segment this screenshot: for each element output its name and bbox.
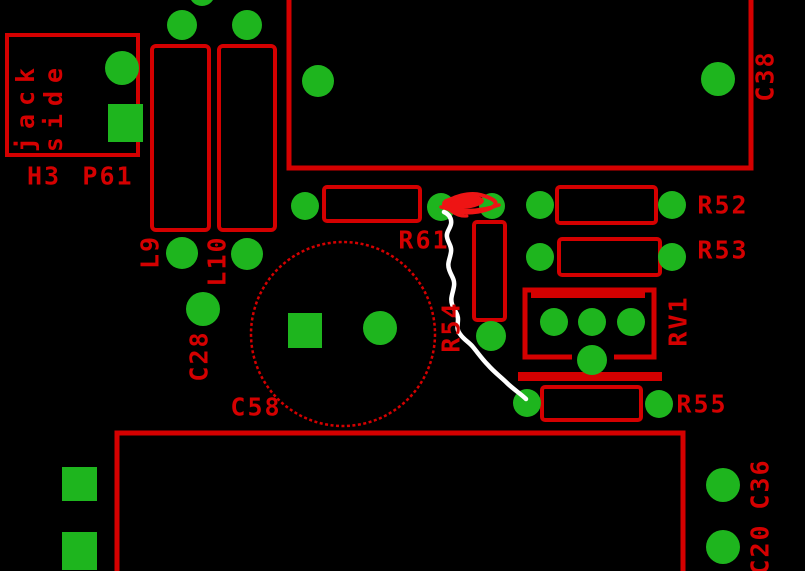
resistor-r52-outline[interactable]: [557, 187, 656, 223]
pad-l10-bottom[interactable]: [231, 238, 263, 270]
pad-r53-right[interactable]: [658, 243, 686, 271]
pad-h3-square[interactable]: [108, 104, 143, 142]
pad-c58-round[interactable]: [363, 311, 397, 345]
label-r61: R61: [398, 228, 449, 253]
label-c20: C20: [748, 523, 773, 571]
label-c58: C58: [230, 395, 281, 420]
pad-rv1-3[interactable]: [617, 308, 645, 336]
pad-c20[interactable]: [706, 530, 740, 564]
label-r52: R52: [697, 193, 748, 218]
label-c28: C28: [187, 330, 212, 381]
label-p61: P61: [82, 164, 133, 189]
pad-r52-left[interactable]: [526, 191, 554, 219]
inductor-l9-outline[interactable]: [152, 46, 209, 230]
label-l9: L9: [138, 235, 163, 269]
pad-top-module-left[interactable]: [302, 65, 334, 97]
pcb-layout-canvas: jackside H3 P61 L9 L10 C28 C58 R61 R54 R…: [0, 0, 805, 571]
resistor-r55-outline[interactable]: [542, 387, 641, 420]
label-c38: C38: [753, 50, 778, 101]
pad-c58-square[interactable]: [288, 313, 322, 348]
label-h3: H3: [27, 164, 61, 189]
label-jack-side-line1: jack: [11, 60, 40, 152]
inductor-l10-outline[interactable]: [219, 46, 275, 230]
pad-rv1-1[interactable]: [540, 308, 568, 336]
pad-top-partial[interactable]: [189, 0, 215, 6]
resistor-r53-outline[interactable]: [559, 239, 660, 275]
pcb-graphics: [0, 0, 805, 571]
top-module-outline[interactable]: [289, 0, 751, 168]
resistor-r61-outline[interactable]: [324, 187, 420, 221]
label-rv1: RV1: [666, 295, 691, 346]
label-c36: C36: [748, 458, 773, 509]
pad-top-1[interactable]: [167, 10, 197, 40]
label-l10: L10: [205, 235, 230, 286]
label-r53: R53: [697, 238, 748, 263]
pad-bottom-left-2[interactable]: [62, 532, 97, 570]
pad-r61-left[interactable]: [291, 192, 319, 220]
pad-top-2[interactable]: [232, 10, 262, 40]
bottom-module-outline[interactable]: [117, 433, 683, 571]
pad-bottom-left-1[interactable]: [62, 467, 97, 501]
pad-r53-left[interactable]: [526, 243, 554, 271]
pad-rv1-2[interactable]: [578, 308, 606, 336]
pad-l9-bottom[interactable]: [166, 237, 198, 269]
pad-r55-right[interactable]: [645, 390, 673, 418]
label-r55: R55: [676, 392, 727, 417]
pad-r54-bottom[interactable]: [476, 321, 506, 351]
pad-h3-round[interactable]: [105, 51, 139, 85]
pad-c28[interactable]: [186, 292, 220, 326]
label-jack-side: jackside: [12, 60, 68, 152]
varistor-rv1-top-bar[interactable]: [531, 290, 645, 298]
pad-r52-right[interactable]: [658, 191, 686, 219]
pad-c38[interactable]: [701, 62, 735, 96]
label-r54: R54: [439, 301, 464, 352]
resistor-r54-outline[interactable]: [474, 222, 505, 320]
pad-c36[interactable]: [706, 468, 740, 502]
pad-rv1-center[interactable]: [577, 345, 607, 375]
label-jack-side-line2: side: [39, 60, 68, 152]
